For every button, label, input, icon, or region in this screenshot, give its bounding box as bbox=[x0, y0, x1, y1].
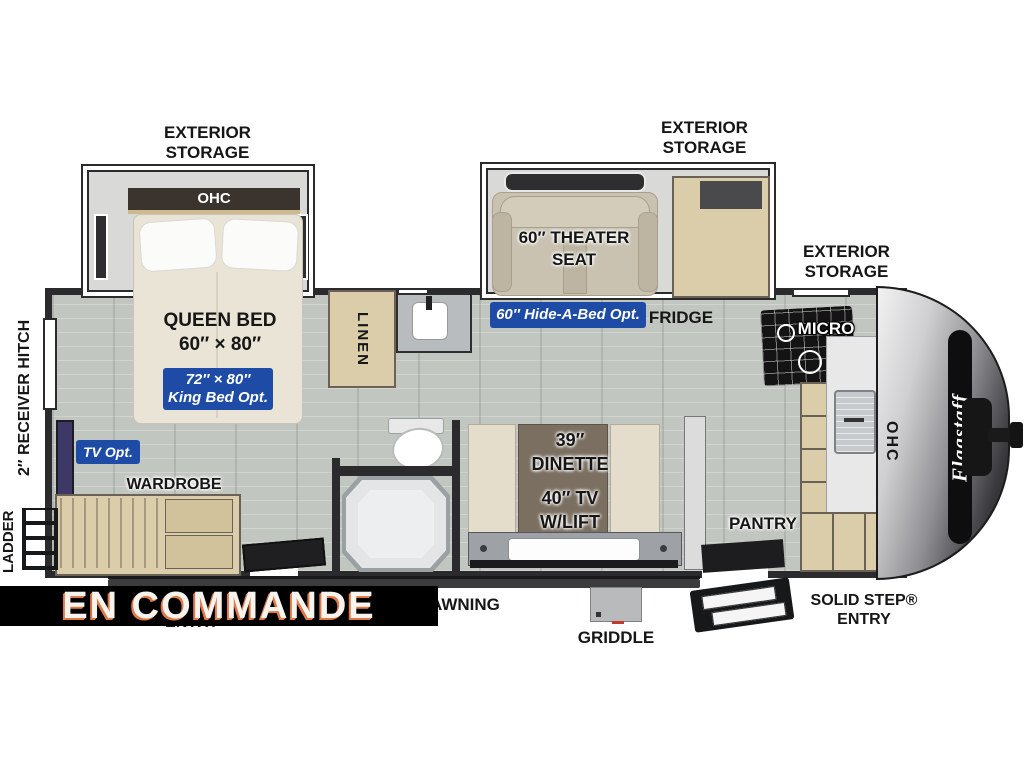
awning-label: AWNING bbox=[430, 595, 522, 615]
micro-label: MICRO bbox=[790, 319, 862, 339]
theater-seat-backroll bbox=[500, 196, 650, 228]
fridge-cabinet-inset bbox=[700, 181, 762, 209]
bedroom-ohc-cabinet: OHC bbox=[128, 188, 300, 210]
ladder-icon bbox=[22, 508, 58, 570]
king-bed-text: King Bed Opt. bbox=[168, 389, 268, 407]
ladder-label: LADDER bbox=[0, 496, 18, 588]
theater-seat-label-line2: SEAT bbox=[488, 250, 660, 270]
bedroom-ohc-label: OHC bbox=[197, 190, 230, 208]
solid-step-line2: ENTRY bbox=[798, 611, 930, 630]
solid-step-line1: SOLID STEP® bbox=[798, 592, 930, 611]
wardrobe-drawer-bottom bbox=[165, 535, 233, 569]
fridge-label: FRIDGE bbox=[642, 308, 720, 328]
bath-wall-right bbox=[452, 420, 460, 572]
pillow-left bbox=[138, 217, 217, 272]
linen-closet: LINEN bbox=[328, 290, 396, 388]
shower-header-wall bbox=[340, 466, 452, 476]
queen-bed-size-label: 60″ × 80″ bbox=[135, 334, 305, 356]
wardrobe-hanging-rods bbox=[60, 498, 160, 568]
burner-large bbox=[798, 350, 822, 374]
front-storage-door bbox=[792, 288, 850, 297]
griddle-knob bbox=[596, 612, 601, 617]
kitchen-faucet bbox=[844, 418, 864, 422]
pantry-label: PANTRY bbox=[720, 514, 806, 534]
kitchen-ohc-label: OHC bbox=[878, 406, 900, 478]
kitchen-sink bbox=[834, 390, 876, 454]
pantry-counter bbox=[701, 539, 785, 573]
bedroom-slide-window-left bbox=[94, 214, 108, 280]
queen-bed-label: QUEEN BED bbox=[135, 310, 305, 332]
tv-option-badge: TV Opt. bbox=[76, 440, 140, 464]
hide-a-bed-option-badge: 60″ Hide-A-Bed Opt. bbox=[490, 302, 646, 328]
griddle-red-mark bbox=[612, 621, 624, 624]
king-bed-option-badge: 72″ × 80″ King Bed Opt. bbox=[163, 368, 273, 410]
linen-label: LINEN bbox=[353, 312, 371, 367]
tv-lift-base bbox=[470, 560, 678, 568]
shower-drain-area bbox=[358, 490, 434, 558]
exterior-storage-label-right: EXTERIOR STORAGE bbox=[779, 242, 914, 282]
tv-lift-screen bbox=[508, 538, 640, 561]
status-banner-text: EN COMMANDE bbox=[62, 585, 375, 628]
wardrobe-drawer-top bbox=[165, 499, 233, 533]
dinette-label-line3: 40″ TV bbox=[500, 488, 640, 509]
tv-lift-screw-right bbox=[660, 545, 667, 552]
bath-faucet bbox=[426, 296, 432, 310]
solid-step-entry-label: SOLID STEP® ENTRY bbox=[798, 592, 930, 630]
dinette-label-line4: W/LIFT bbox=[500, 512, 640, 533]
tv-option-text: TV Opt. bbox=[83, 444, 133, 461]
hide-a-bed-text: 60″ Hide-A-Bed Opt. bbox=[496, 306, 640, 324]
pillow-right bbox=[221, 218, 300, 272]
theater-seat-label-line1: 60″ THEATER bbox=[488, 228, 660, 248]
bath-wall-left bbox=[332, 458, 340, 572]
dinette-label-line2: DINETTE bbox=[500, 454, 640, 475]
exterior-storage-label-left: EXTERIOR STORAGE bbox=[140, 123, 275, 163]
floorplan-canvas: EXTERIOR STORAGE EXTERIOR STORAGE EXTERI… bbox=[0, 0, 1024, 768]
dinette-label-line1: 39″ bbox=[500, 430, 640, 451]
wardrobe-label: WARDROBE bbox=[116, 476, 232, 495]
king-bed-size: 72″ × 80″ bbox=[186, 371, 251, 389]
rear-window bbox=[43, 318, 57, 410]
griddle-label: GRIDDLE bbox=[570, 628, 662, 648]
status-banner: EN COMMANDE bbox=[0, 586, 438, 626]
receiver-hitch-label: 2″ RECEIVER HITCH bbox=[16, 285, 40, 511]
theater-slide-window bbox=[504, 172, 646, 192]
exterior-storage-label-center: EXTERIOR STORAGE bbox=[637, 118, 772, 158]
tv-lift-screw-left bbox=[480, 545, 487, 552]
hitch-coupler bbox=[1010, 422, 1023, 448]
